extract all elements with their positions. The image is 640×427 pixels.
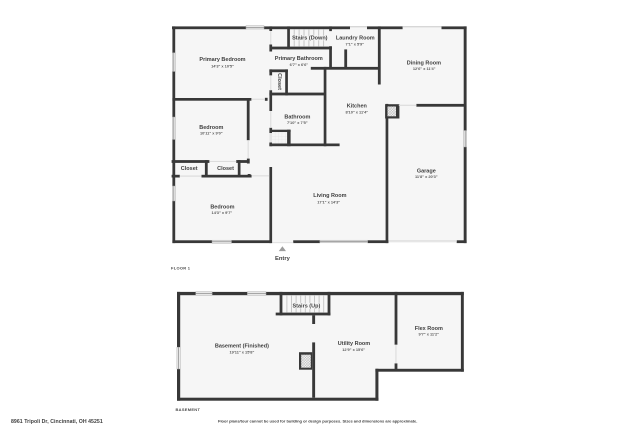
svg-text:Living Room: Living Room bbox=[313, 193, 346, 199]
svg-text:14'3" x 10'5": 14'3" x 10'5" bbox=[211, 64, 234, 69]
svg-text:BASEMENT: BASEMENT bbox=[176, 407, 201, 412]
svg-text:8961 Tripoli Dr, Cincinnati, O: 8961 Tripoli Dr, Cincinnati, OH 45251 bbox=[11, 419, 103, 425]
svg-text:11'8" x 20'3": 11'8" x 20'3" bbox=[415, 174, 438, 179]
svg-text:7'1" x 5'9": 7'1" x 5'9" bbox=[346, 41, 365, 46]
svg-text:Stairs (Up): Stairs (Up) bbox=[292, 303, 320, 309]
svg-text:14'3" x 9'7": 14'3" x 9'7" bbox=[212, 210, 233, 215]
svg-text:6'7" x 6'6": 6'7" x 6'6" bbox=[290, 62, 309, 67]
svg-text:12'9" x 15'6": 12'9" x 15'6" bbox=[342, 347, 365, 352]
svg-text:Floor plans/tour cannot be use: Floor plans/tour cannot be used for buil… bbox=[218, 418, 417, 423]
svg-text:Closet: Closet bbox=[181, 166, 198, 172]
svg-text:Closet: Closet bbox=[217, 166, 234, 172]
svg-text:Primary Bedroom: Primary Bedroom bbox=[199, 57, 245, 63]
svg-text:17'1" x 14'3": 17'1" x 14'3" bbox=[317, 200, 340, 205]
svg-text:9'7" x 11'2": 9'7" x 11'2" bbox=[419, 332, 440, 337]
svg-text:Utility Room: Utility Room bbox=[338, 341, 370, 347]
svg-text:12'6" x 11'4": 12'6" x 11'4" bbox=[413, 66, 436, 71]
svg-text:Entry: Entry bbox=[275, 256, 291, 262]
svg-text:7'10" x 7'5": 7'10" x 7'5" bbox=[287, 120, 308, 125]
svg-text:10'11" x 9'0": 10'11" x 9'0" bbox=[200, 130, 223, 135]
svg-text:Closet: Closet bbox=[276, 73, 282, 90]
svg-text:8'10" x 11'4": 8'10" x 11'4" bbox=[345, 110, 368, 115]
svg-text:19'11" x 15'8": 19'11" x 15'8" bbox=[230, 350, 255, 355]
svg-text:Stairs (Down): Stairs (Down) bbox=[292, 36, 328, 42]
svg-text:Basement (Finished): Basement (Finished) bbox=[215, 343, 269, 349]
svg-text:FLOOR 1: FLOOR 1 bbox=[171, 266, 191, 271]
